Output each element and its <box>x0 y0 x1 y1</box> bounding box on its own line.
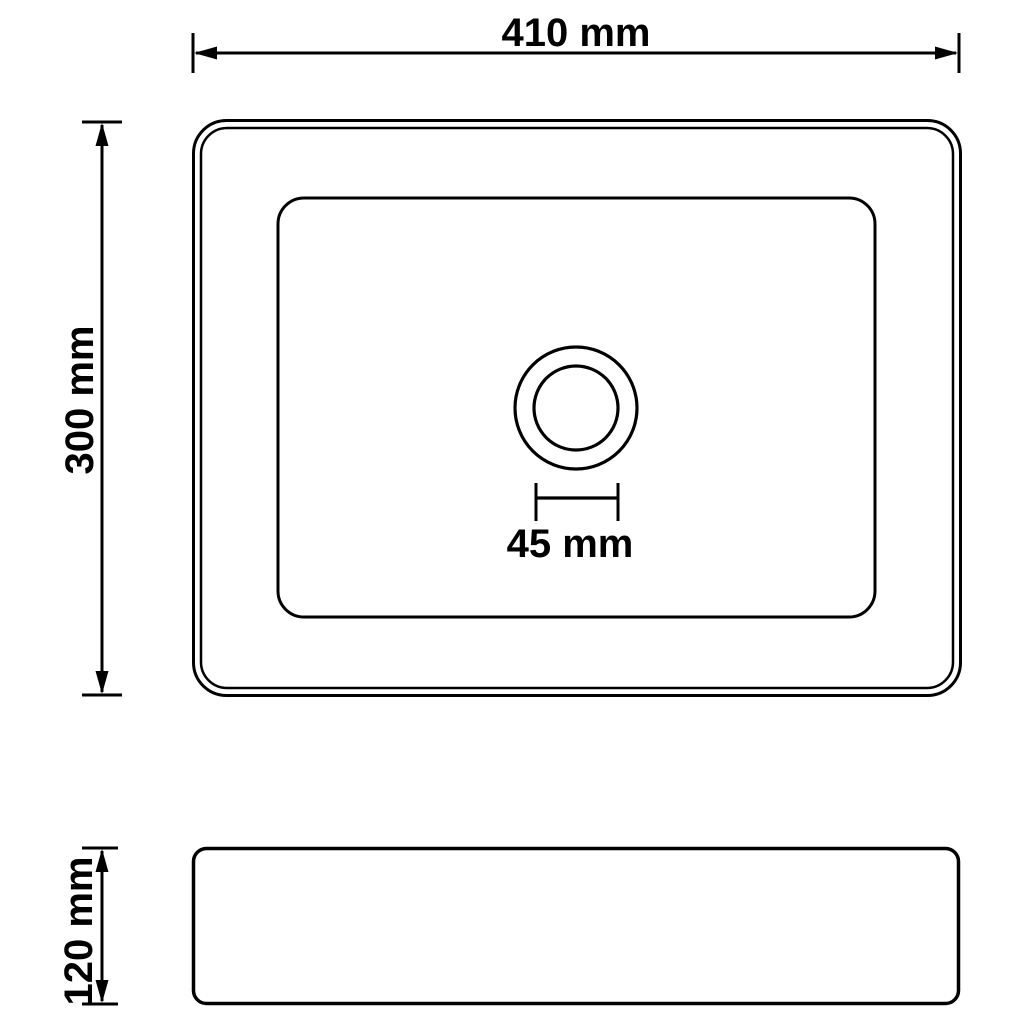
depth-dimension-label: 120 mm <box>57 857 101 1006</box>
depth-dimension: 120 mm <box>57 848 118 1005</box>
drain-dimension-label: 45 mm <box>507 522 634 566</box>
height-dimension-down-arrow-icon <box>96 671 109 694</box>
drain-inner-circle <box>534 366 618 450</box>
technical-drawing-canvas: 410 mm 300 mm <box>0 0 1024 1024</box>
top-view-outer-outline <box>194 121 961 696</box>
width-dimension: 410 mm <box>193 11 959 73</box>
height-dimension: 300 mm <box>58 122 122 695</box>
side-view-outline <box>194 849 959 1004</box>
top-view-rim-inner-line <box>201 128 953 688</box>
width-dimension-left-arrow-icon <box>194 47 217 60</box>
basin-dimension-drawing: 410 mm 300 mm <box>0 0 1024 1024</box>
height-dimension-up-arrow-icon <box>96 123 109 146</box>
width-dimension-label: 410 mm <box>502 11 651 55</box>
drain-dimension: 45 mm <box>507 483 634 566</box>
basin-top-view <box>194 121 961 696</box>
basin-side-view <box>194 849 959 1004</box>
height-dimension-label: 300 mm <box>58 326 102 475</box>
width-dimension-right-arrow-icon <box>935 47 958 60</box>
